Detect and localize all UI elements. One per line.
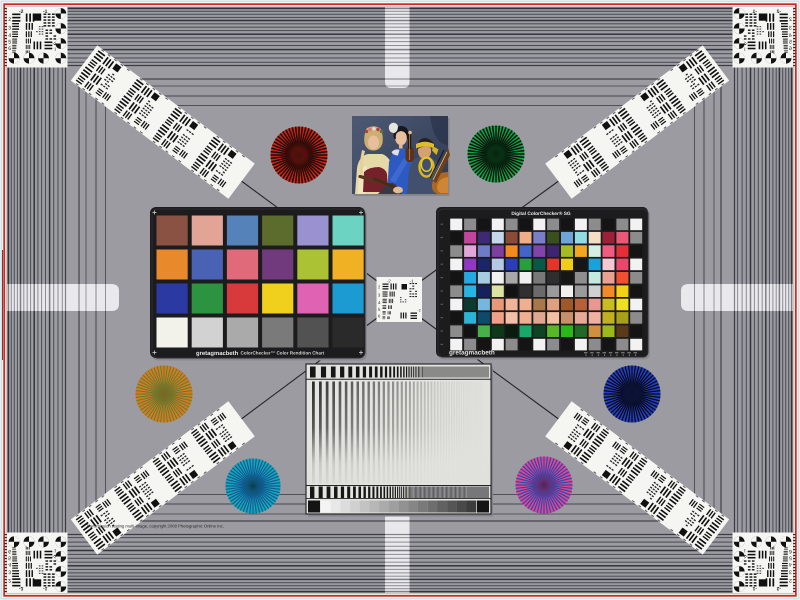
svg-text:gretagmacbeth: gretagmacbeth: [449, 350, 495, 357]
svg-text:-2: -2: [418, 309, 421, 313]
svg-text:Digital ColorChecker® SG: Digital ColorChecker® SG: [511, 211, 571, 217]
svg-text:2: 2: [8, 17, 11, 23]
svg-text:2: 2: [8, 577, 11, 583]
svg-text:3: 3: [789, 26, 792, 32]
svg-text:2: 2: [789, 577, 792, 583]
svg-text:6: 6: [789, 548, 792, 554]
svg-text:gretagmacbeth: gretagmacbeth: [196, 350, 239, 357]
svg-text:4: 4: [789, 33, 792, 39]
svg-text:6: 6: [789, 46, 792, 52]
svg-text:3: 3: [789, 569, 792, 575]
svg-text:5: 5: [8, 555, 11, 561]
svg-text:3: 3: [8, 26, 11, 32]
svg-text:4: 4: [8, 561, 11, 567]
svg-text:4: 4: [789, 561, 792, 567]
svg-text:Transmission testing multi-ima: Transmission testing multi-image, copyri…: [86, 524, 224, 529]
svg-text:2: 2: [789, 17, 792, 23]
svg-text:5: 5: [789, 40, 792, 46]
svg-text:6: 6: [8, 46, 11, 52]
svg-text:4: 4: [8, 33, 11, 39]
svg-text:ColorChecker™ Color Rendition: ColorChecker™ Color Rendition Chart: [241, 351, 325, 356]
svg-text:6: 6: [8, 548, 11, 554]
svg-text:5: 5: [8, 40, 11, 46]
svg-text:3: 3: [8, 569, 11, 575]
svg-text:5: 5: [789, 555, 792, 561]
